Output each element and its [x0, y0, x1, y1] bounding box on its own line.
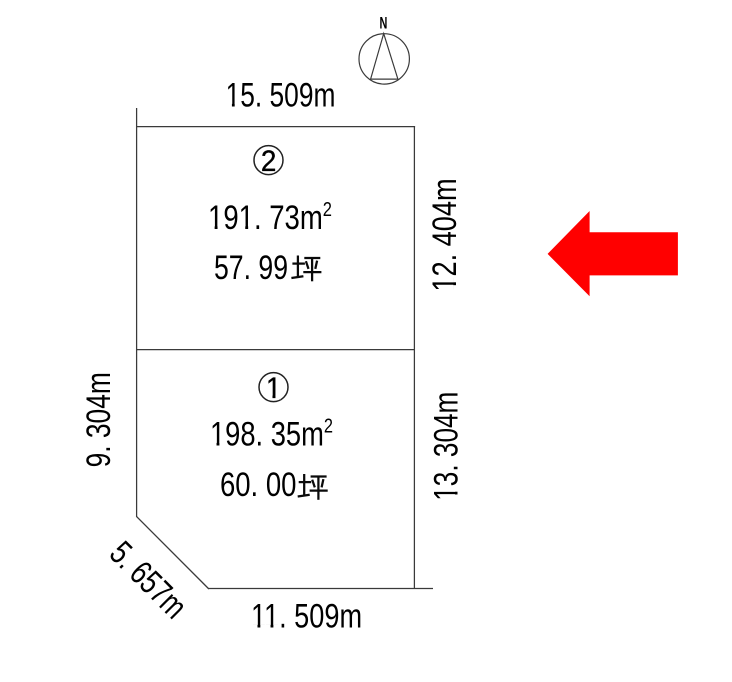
svg-text:57. 99: 57. 99 [214, 249, 288, 287]
svg-text:191. 73m2: 191. 73m2 [208, 197, 332, 236]
svg-text:15. 509m: 15. 509m [226, 76, 336, 114]
svg-text:13. 304m: 13. 304m [428, 392, 465, 501]
svg-text:1: 1 [266, 372, 282, 405]
svg-text:60. 00: 60. 00 [220, 465, 297, 503]
svg-text:2: 2 [261, 145, 277, 178]
svg-text:11. 509m: 11. 509m [251, 597, 362, 636]
svg-text:9. 304m: 9. 304m [80, 372, 118, 467]
svg-text:5. 657m: 5. 657m [102, 535, 194, 627]
svg-text:12. 404m: 12. 404m [425, 178, 464, 291]
svg-text:N: N [379, 13, 387, 32]
svg-text:198. 35m2: 198. 35m2 [210, 414, 333, 453]
